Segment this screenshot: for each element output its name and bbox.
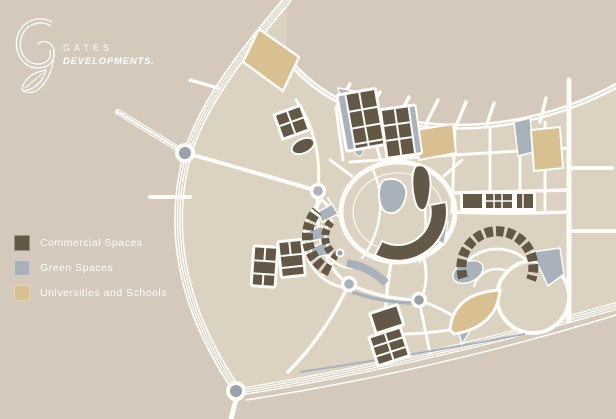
legend-label-green: Green Spaces	[40, 262, 113, 274]
brand-bottom-text: DEVELOPMENTS.	[63, 56, 155, 67]
brand-wordmark: GATES DEVELOPMENTS.	[63, 43, 155, 67]
legend-label-university: Universities and Schools	[40, 287, 167, 299]
logo-g-icon	[16, 19, 54, 93]
brand-top-text: GATES	[63, 43, 113, 53]
legend-label-commercial: Commercial Spaces	[40, 237, 142, 249]
legend-item-university: Universities and Schools	[14, 285, 167, 301]
legend: Commercial Spaces Green Spaces Universit…	[14, 235, 167, 301]
legend-item-commercial: Commercial Spaces	[14, 235, 167, 251]
brand-logo: GATES DEVELOPMENTS.	[8, 12, 158, 96]
green-swatch	[14, 260, 30, 276]
commercial-swatch	[14, 235, 30, 251]
legend-item-green: Green Spaces	[14, 260, 167, 276]
university-swatch	[14, 285, 30, 301]
